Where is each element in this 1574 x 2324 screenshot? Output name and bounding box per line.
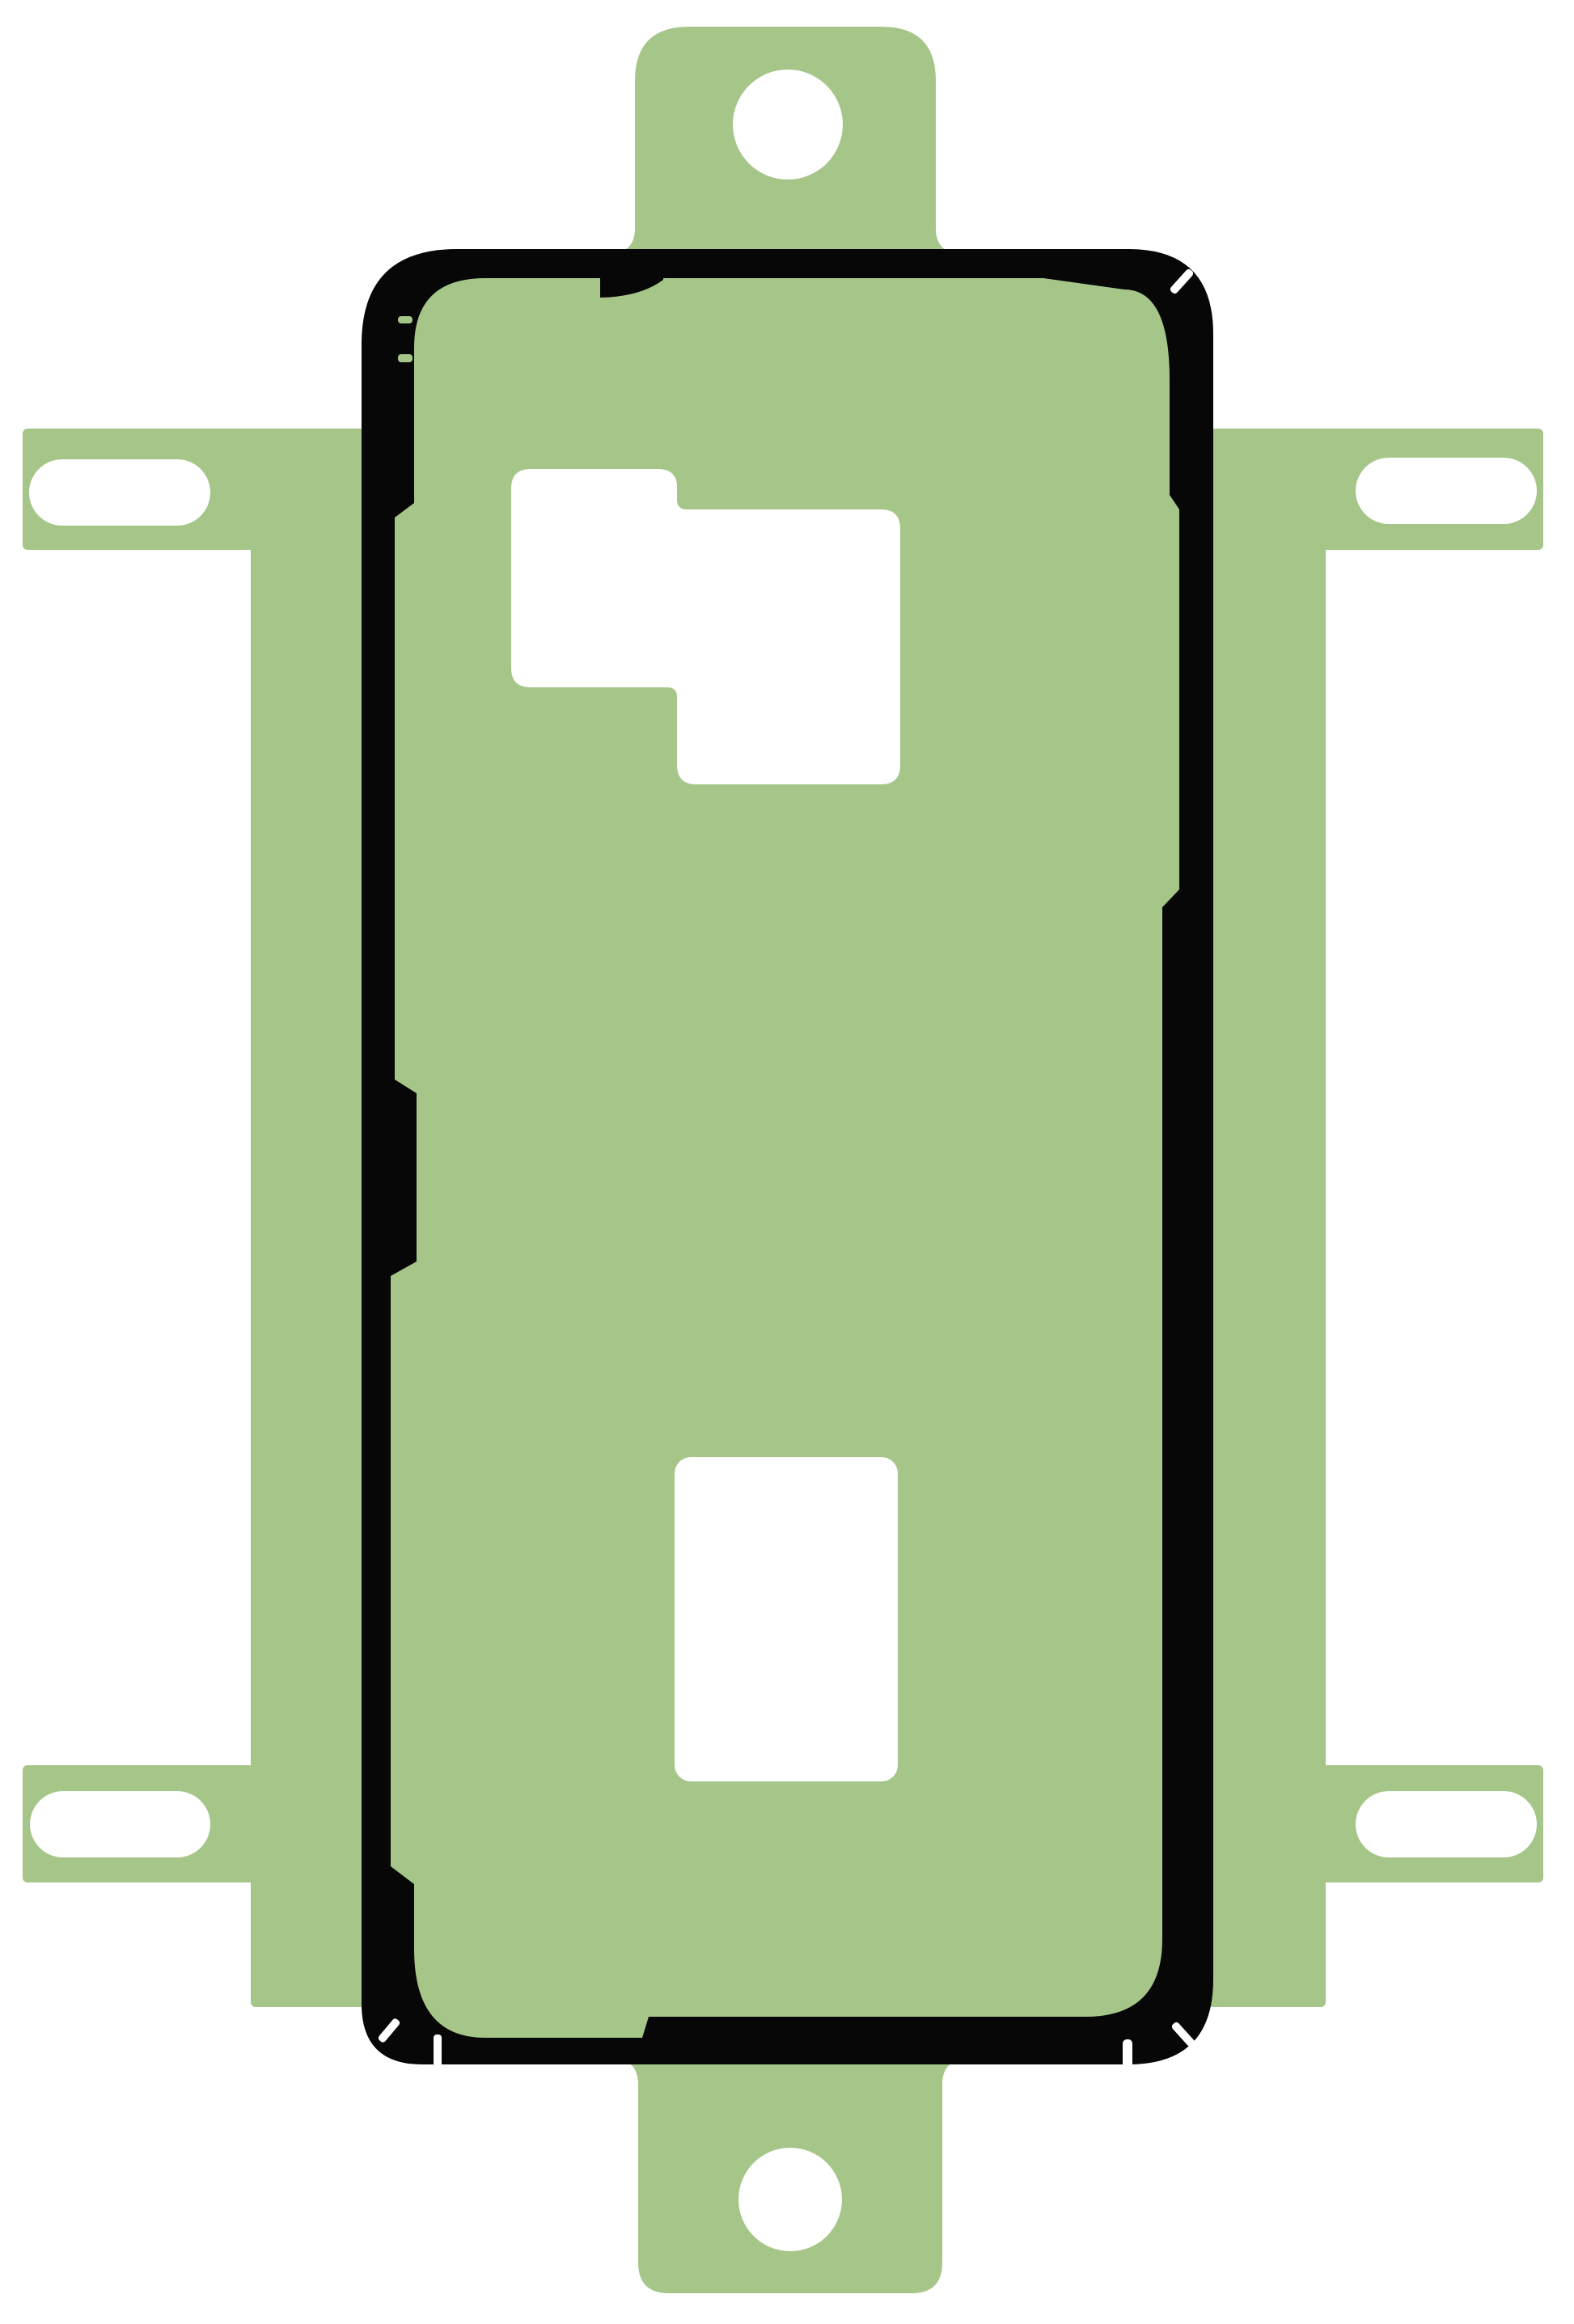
- left-rail-bottom-slot: [30, 1791, 210, 1857]
- notch-bottom-bar-right: [1123, 2039, 1132, 2068]
- left-rail-top-slot: [29, 459, 210, 526]
- lower-cutout: [675, 1457, 898, 1781]
- right-rail-bottom-slot: [1356, 1791, 1537, 1857]
- adhesive-sheet-image: [0, 0, 1574, 2324]
- top-tab-hole: [733, 70, 843, 180]
- notch-left-top-1: [398, 316, 413, 323]
- bottom-tab-hole: [738, 2148, 842, 2251]
- right-rail-top-slot: [1356, 458, 1537, 524]
- notch-bottom-bar-left: [434, 2035, 442, 2067]
- notch-left-top-2: [398, 354, 413, 362]
- adhesive-sheet-vector: [0, 0, 1574, 2324]
